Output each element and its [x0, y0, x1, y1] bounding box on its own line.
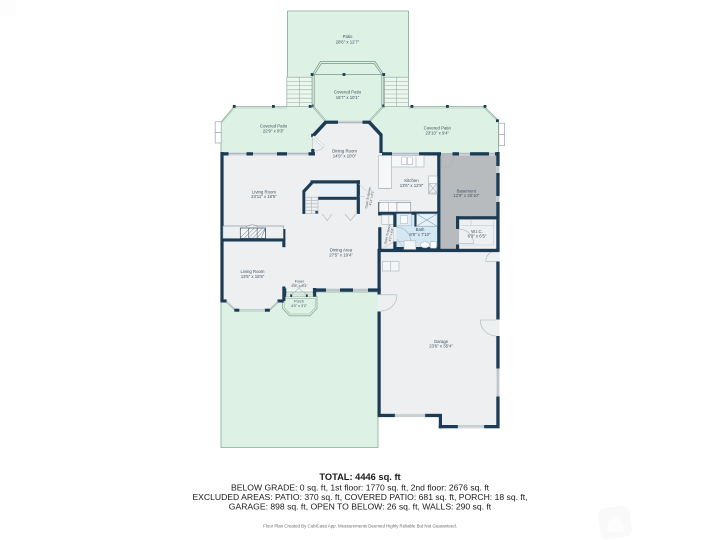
- svg-text:4'0" x 3'2": 4'0" x 3'2": [291, 304, 308, 308]
- svg-text:GARAGE: 898 sq. ft, OPEN TO BE: GARAGE: 898 sq. ft, OPEN TO BELOW: 26 sq…: [229, 501, 492, 511]
- svg-text:13'5" x 15'5": 13'5" x 15'5": [241, 274, 265, 279]
- svg-text:6'3" x 6'5": 6'3" x 6'5": [468, 233, 487, 238]
- svg-text:6'0" x 5'3": 6'0" x 5'3": [291, 284, 308, 288]
- svg-text:Porch: Porch: [294, 300, 304, 304]
- svg-text:EXCLUDED AREAS: PATIO: 370 sq.: EXCLUDED AREAS: PATIO: 370 sq. ft, COVER…: [192, 492, 527, 502]
- svg-text:16'7" x 10'1": 16'7" x 10'1": [336, 95, 360, 100]
- svg-text:9'8" x 7'10": 9'8" x 7'10": [409, 232, 431, 237]
- svg-text:Floor Plan Created By CubiCasa: Floor Plan Created By CubiCasa App. Meas…: [263, 524, 457, 529]
- svg-text:22'9" x 9'3": 22'9" x 9'3": [263, 129, 285, 134]
- svg-text:12'8" x 20'10": 12'8" x 20'10": [453, 193, 479, 198]
- svg-text:Covered Patio: Covered Patio: [334, 89, 362, 94]
- svg-text:14'9" x 10'0": 14'9" x 10'0": [333, 154, 357, 159]
- svg-text:23'11" x 18'5": 23'11" x 18'5": [251, 194, 277, 199]
- svg-text:BELOW GRADE: 0 sq. ft, 1st flo: BELOW GRADE: 0 sq. ft, 1st floor: 1770 s…: [231, 482, 490, 492]
- svg-text:27'5" x 19'4": 27'5" x 19'4": [329, 252, 353, 257]
- svg-text:Foyer: Foyer: [295, 280, 305, 284]
- svg-text:28'6" x 12'7": 28'6" x 12'7": [336, 40, 360, 45]
- svg-text:13'6" x 12'8": 13'6" x 12'8": [400, 183, 424, 188]
- svg-text:TOTAL: 4446 sq. ft: TOTAL: 4446 sq. ft: [319, 472, 400, 482]
- svg-text:Patio: Patio: [343, 34, 353, 39]
- svg-text:23'10" x 9'4": 23'10" x 9'4": [426, 131, 450, 136]
- svg-text:23'6" x 35'4": 23'6" x 35'4": [429, 344, 453, 349]
